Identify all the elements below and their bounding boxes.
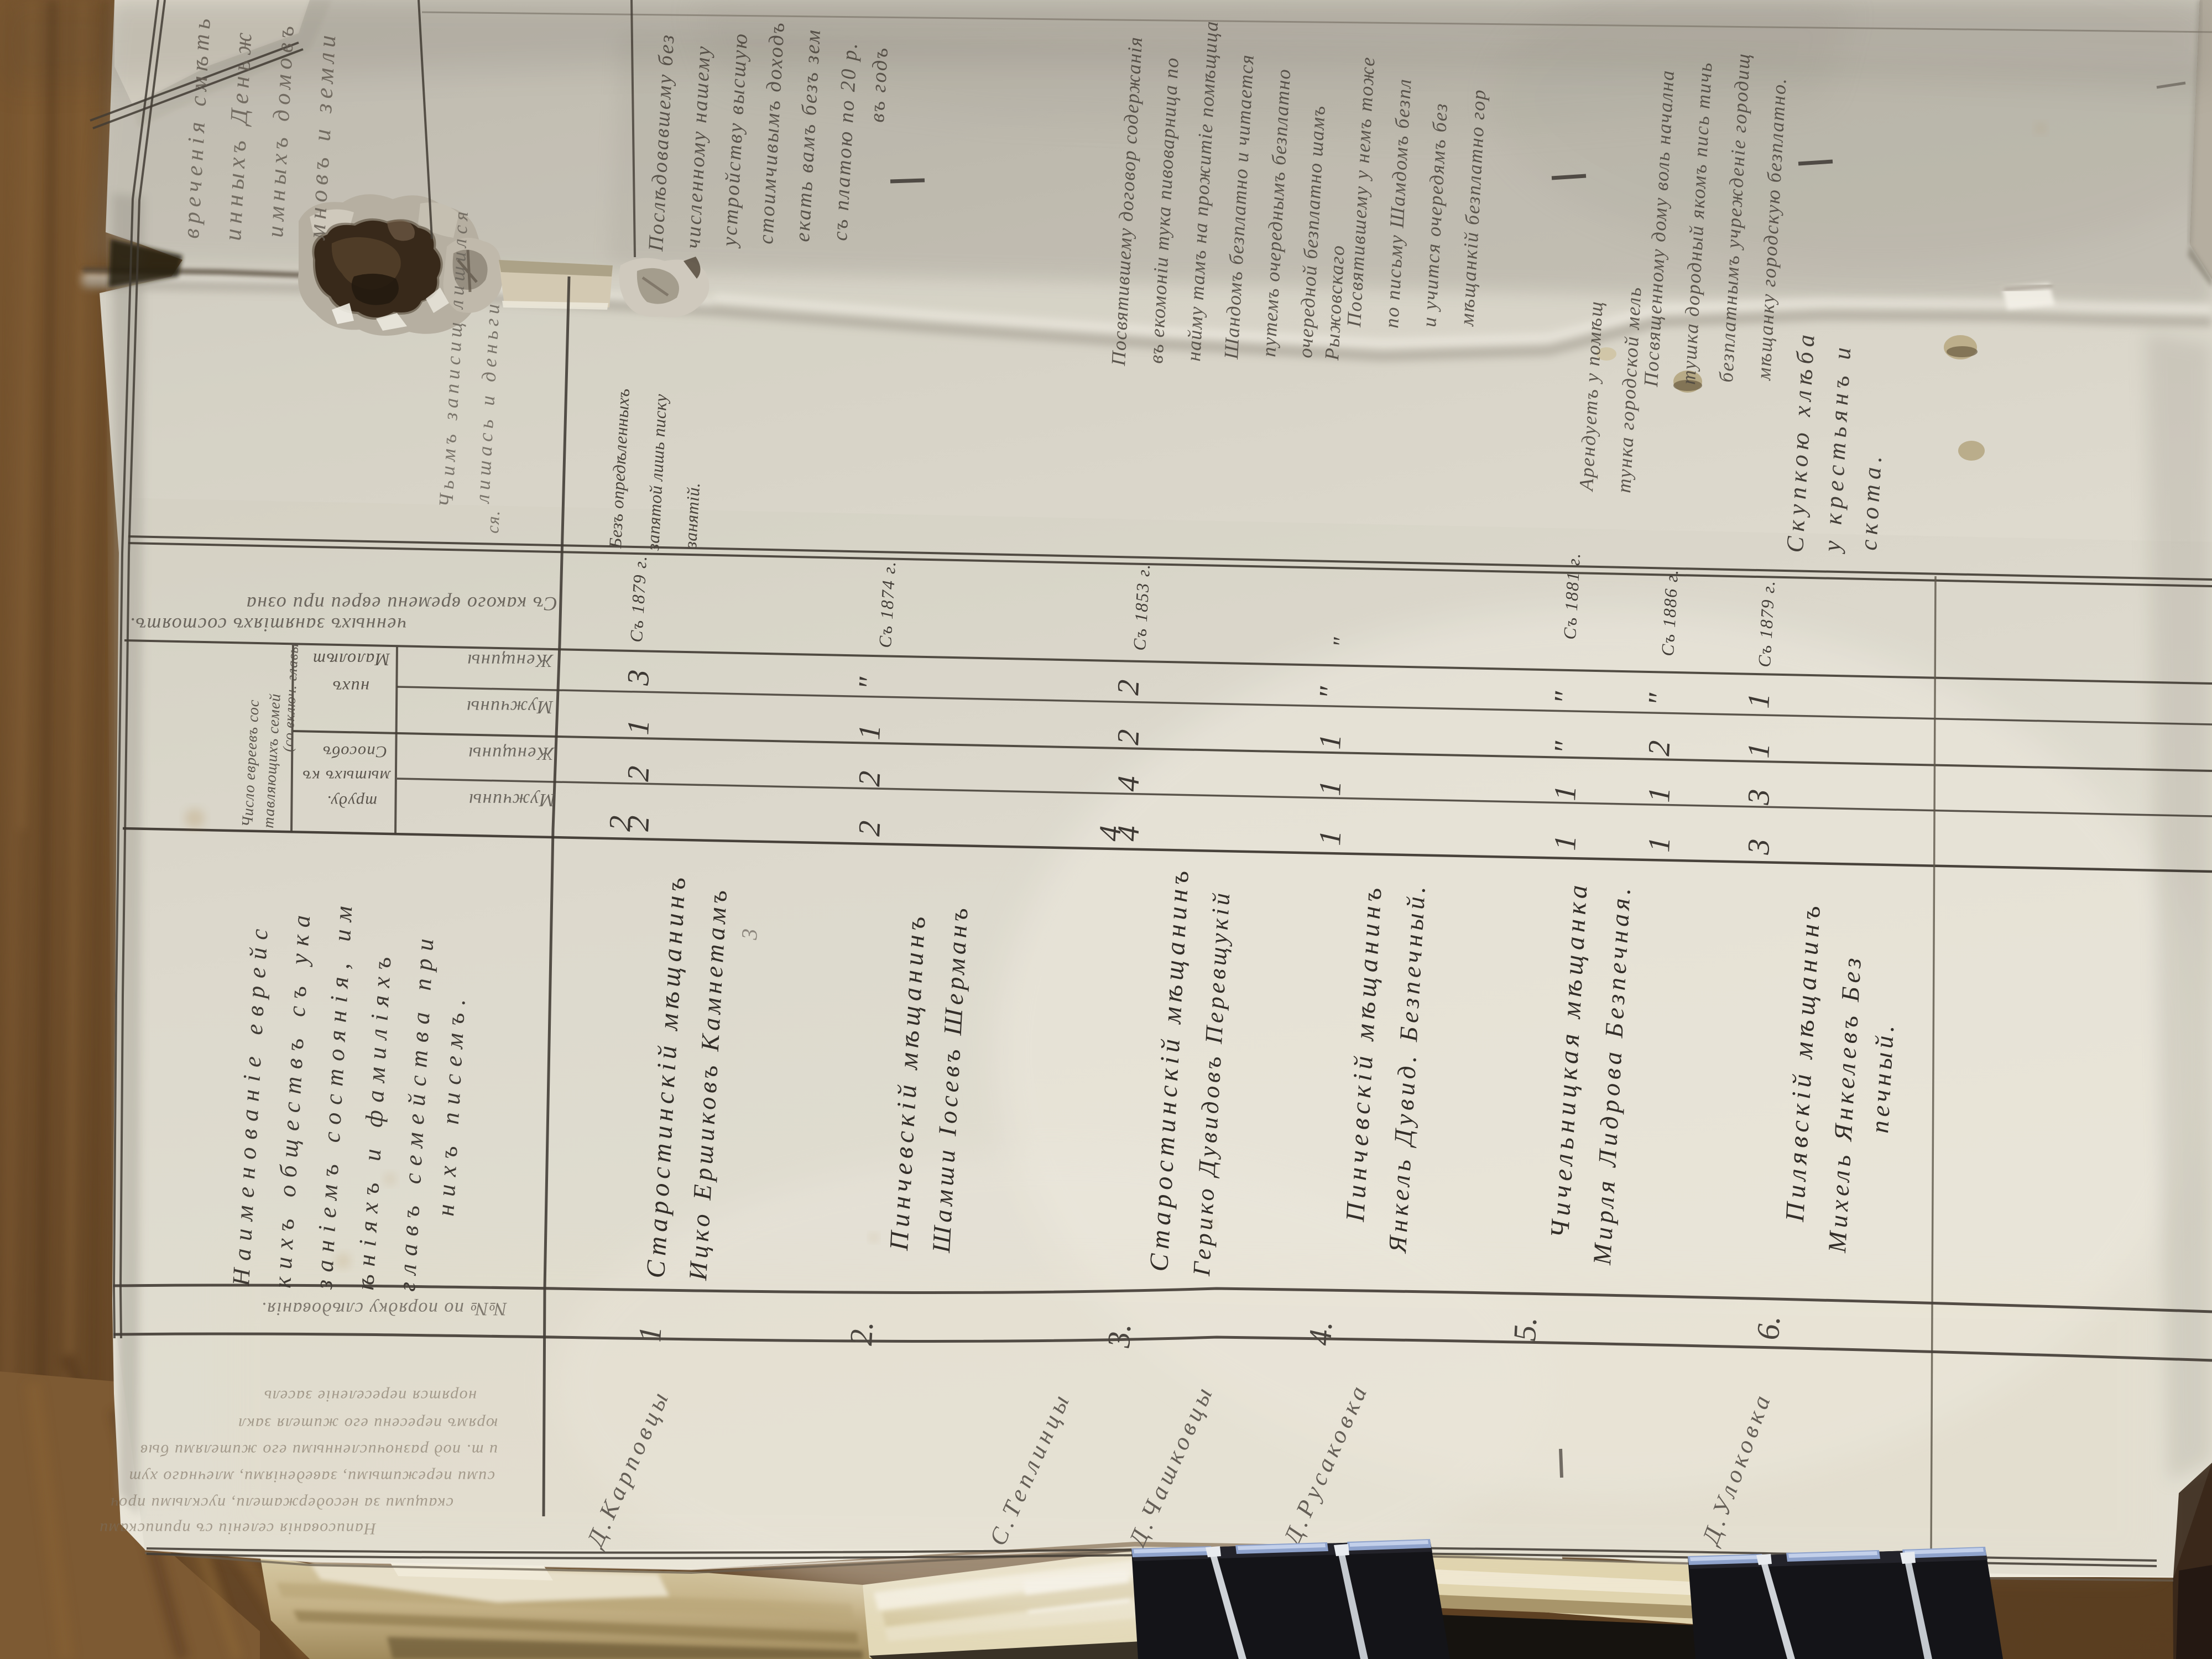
svg-text:печный.: печный.	[1865, 1021, 1900, 1134]
svg-text:1: 1	[1313, 829, 1348, 846]
svg-text:2.: 2.	[843, 1321, 880, 1347]
svg-text:Способъ: Способъ	[322, 743, 387, 761]
svg-text:норятся переселенie засель: норятся переселенie засель	[263, 1387, 477, 1405]
svg-text:5.: 5.	[1506, 1316, 1543, 1342]
svg-text:": "	[852, 676, 887, 691]
svg-text:2: 2	[852, 820, 887, 837]
svg-text:мытыхъ къ: мытыхъ къ	[302, 767, 391, 785]
svg-text:сими пережитыми, заведеніями,: сими пережитыми, заведеніями, млечнаго х…	[128, 1468, 495, 1486]
svg-text:": "	[1328, 637, 1355, 649]
svg-text:юрямъ пересени его жителя закл: юрямъ пересени его жителя закл	[238, 1415, 498, 1433]
svg-text:труду.: труду.	[326, 792, 377, 811]
svg-text:Съ какого времени евреи при оз: Съ какого времени евреи при озна	[246, 593, 557, 615]
svg-text:Мужчины: Мужчины	[468, 790, 556, 810]
svg-text:1: 1	[1548, 784, 1583, 801]
svg-text:и т. под разночисленными его ж: и т. под разночисленными его жителями бы…	[140, 1441, 498, 1459]
svg-text:2: 2	[1642, 739, 1677, 757]
svg-text:скота.: скота.	[1855, 450, 1887, 551]
svg-text:1: 1	[621, 718, 656, 735]
svg-text:2: 2	[1111, 728, 1146, 745]
svg-text:4: 4	[1093, 825, 1128, 842]
svg-text:1: 1	[1313, 779, 1348, 796]
svg-text:Мужчины: Мужчины	[466, 697, 554, 717]
svg-text:": "	[1548, 690, 1583, 705]
svg-text:1: 1	[1548, 834, 1583, 851]
svg-text:ся.: ся.	[482, 509, 503, 534]
svg-text:Женщины: Женщины	[468, 743, 555, 764]
svg-text:1: 1	[632, 1325, 668, 1343]
svg-text:2: 2	[1111, 679, 1146, 696]
svg-text:3: 3	[737, 928, 762, 941]
svg-text:3.: 3.	[1100, 1323, 1138, 1349]
svg-text:3: 3	[1741, 788, 1776, 806]
svg-text:1: 1	[852, 723, 887, 740]
svg-text:1: 1	[1313, 733, 1348, 750]
svg-text:": "	[1548, 740, 1583, 755]
svg-text:№№ по порядку слѣдованія.: №№ по порядку слѣдованія.	[260, 1298, 507, 1319]
svg-text:4: 4	[1111, 775, 1146, 792]
svg-text:1: 1	[1741, 692, 1776, 709]
svg-text:": "	[1642, 692, 1677, 707]
svg-text:6.: 6.	[1750, 1315, 1787, 1341]
svg-text:2: 2	[603, 815, 638, 832]
svg-text:нихъ: нихъ	[332, 677, 369, 697]
svg-text:занятій.: занятій.	[680, 482, 703, 549]
svg-text:Написованія селеніи съ приписк: Написованія селеніи съ приписками	[99, 1520, 377, 1538]
svg-text:1: 1	[1741, 742, 1776, 759]
svg-text:": "	[1313, 685, 1348, 700]
svg-text:1: 1	[1642, 786, 1677, 803]
svg-text:3: 3	[1741, 838, 1776, 855]
svg-text:скащими за несодержатели, пуск: скащими за несодержатели, пусклыми проч	[110, 1494, 453, 1512]
svg-text:3: 3	[621, 669, 656, 686]
svg-text:1: 1	[1642, 836, 1677, 853]
svg-text:2: 2	[621, 765, 656, 782]
svg-text:2: 2	[852, 770, 887, 787]
svg-text:ченныхъ занятіяхъ состоятъ.: ченныхъ занятіяхъ состоятъ.	[129, 614, 406, 636]
svg-text:Женщины: Женщины	[467, 650, 554, 671]
svg-text:Малолѣт: Малолѣт	[312, 650, 390, 670]
svg-text:4.: 4.	[1302, 1321, 1339, 1347]
